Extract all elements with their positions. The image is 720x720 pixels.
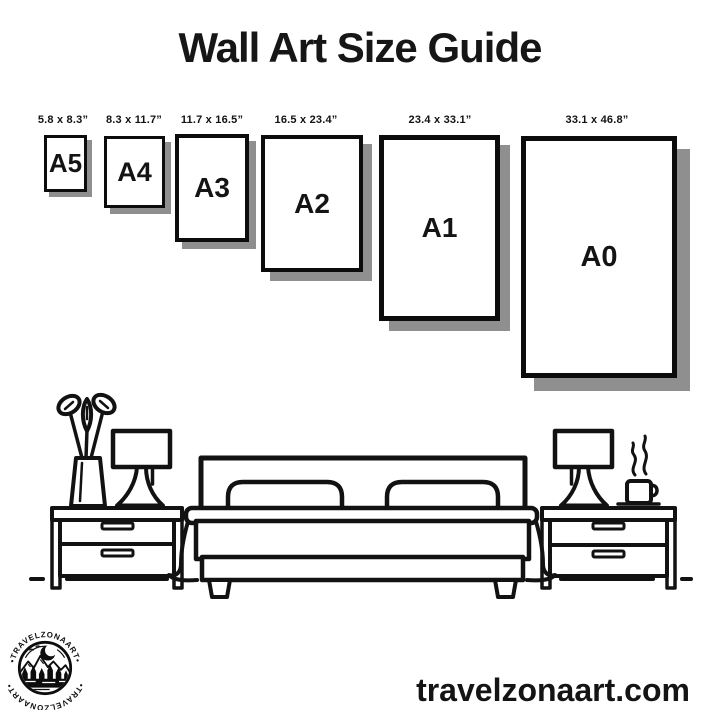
flower-vase-icon [55, 391, 118, 506]
steam-icon [644, 436, 647, 474]
table-lamp-left-icon [113, 431, 170, 506]
website-url: travelzonaart.com [393, 672, 713, 709]
brand-logo: •TRAVELZONAART• •TRAVELZONAART• [3, 626, 87, 710]
nightstand-right-icon [542, 508, 675, 588]
bed-leg-right [495, 580, 516, 597]
coffee-cup-icon [618, 436, 659, 504]
nightstand-left-icon [52, 508, 182, 588]
bed-leg-left [209, 580, 230, 597]
bedroom-illustration [0, 0, 720, 720]
steam-icon [632, 443, 635, 475]
bed-icon [169, 458, 555, 597]
table-lamp-right-icon [555, 431, 612, 506]
